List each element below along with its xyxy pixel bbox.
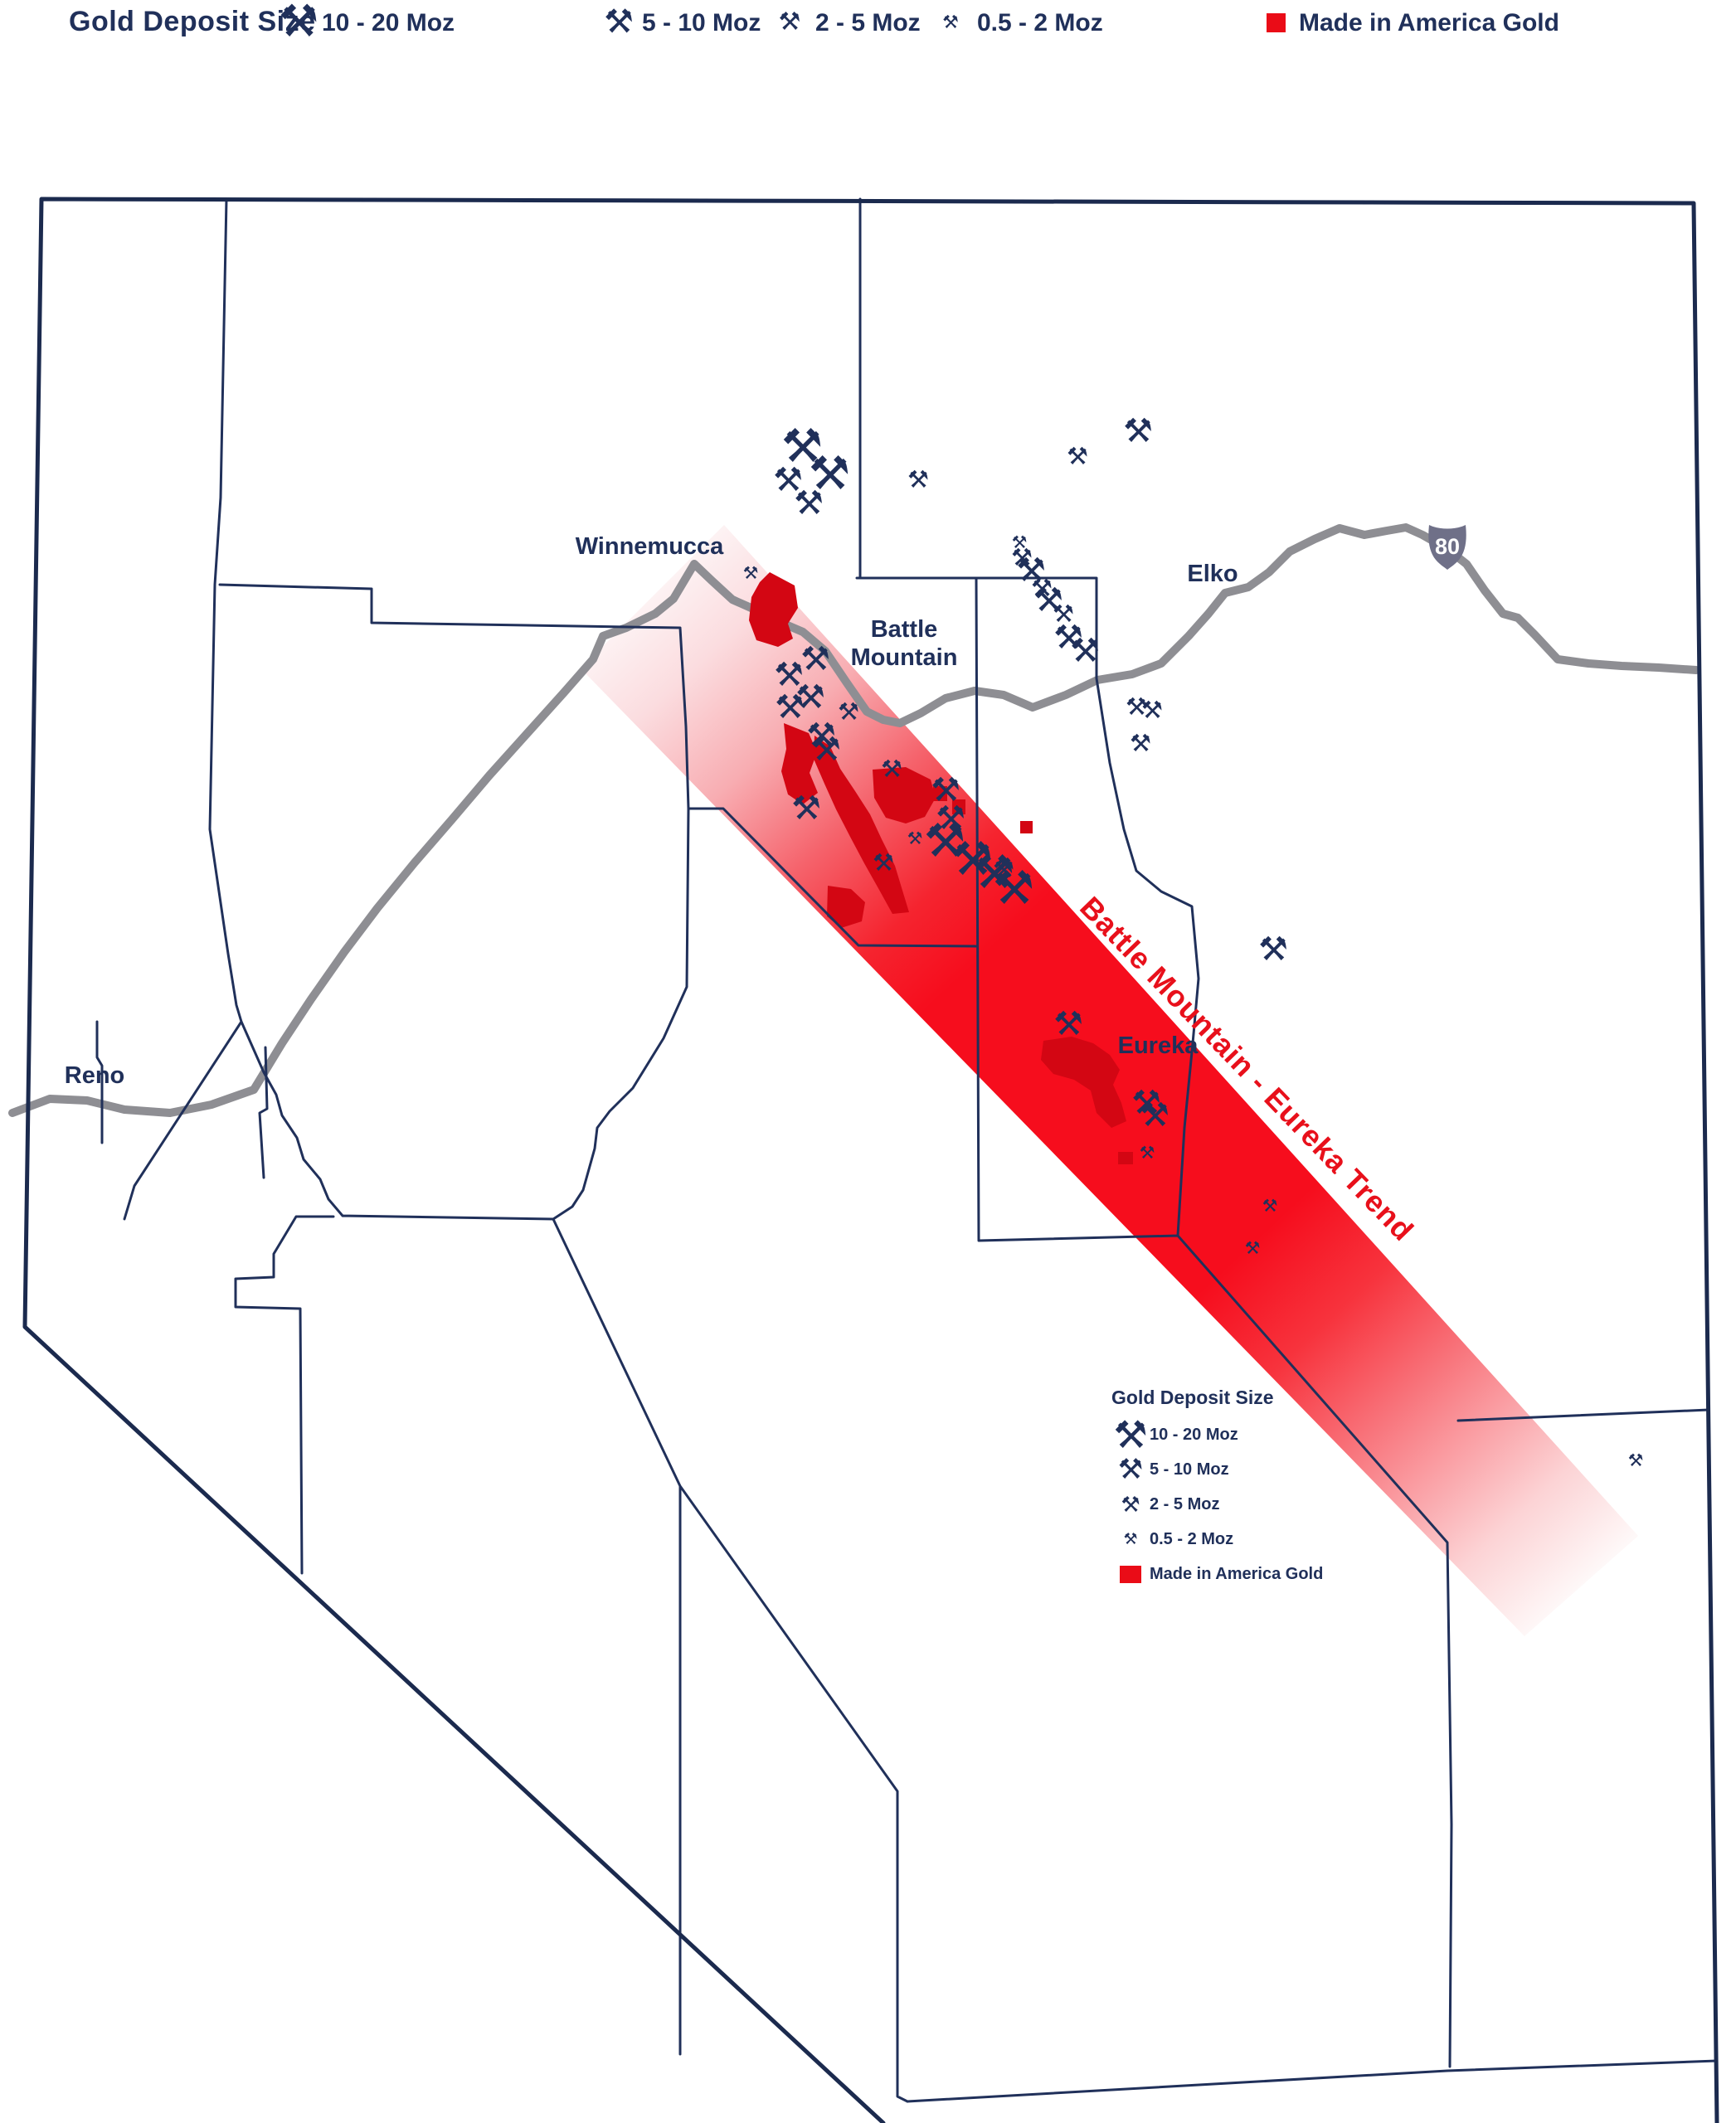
- city-label-winnemucca: Winnemucca: [576, 533, 724, 560]
- gold-deposit-icon-M: ⚒: [775, 688, 805, 726]
- legend-item-label: 5 - 10 Moz: [642, 9, 761, 37]
- gold-deposit-area: [1118, 1152, 1133, 1164]
- gold-deposit-icon-M: ⚒: [794, 484, 824, 522]
- inner-legend-item-label: 5 - 10 Moz: [1150, 1460, 1229, 1479]
- gold-deposit-icon-S: ⚒: [1067, 442, 1088, 470]
- city-label-battle-mountain: Battle: [871, 616, 938, 643]
- pickaxes-icon-small: ⚒: [1111, 1494, 1150, 1515]
- gold-deposit-icon-T: ⚒: [907, 828, 923, 848]
- nevada-state-outline: [25, 199, 1717, 2123]
- city-label-battle-mountain: Mountain: [851, 644, 958, 671]
- top-legend: Gold Deposit Size ⚒ 10 - 20 Moz ⚒ 5 - 10…: [0, 0, 1736, 58]
- made-in-america-swatch-cell: [1111, 1566, 1150, 1583]
- gold-deposit-icon-M: ⚒: [811, 731, 841, 769]
- gold-deposit-icon-M: ⚒: [1070, 632, 1100, 670]
- gold-deposit-icon-M: ⚒: [800, 640, 830, 678]
- made-in-america-swatch: [1120, 1566, 1141, 1583]
- pickaxes-icon-small: ⚒: [779, 10, 801, 35]
- page: { "colors": { "navy": "#20305a", "county…: [0, 0, 1736, 2123]
- inner-legend-row: ⚒ 0.5 - 2 Moz: [1111, 1522, 1385, 1557]
- pickaxes-icon-large: ⚒: [279, 0, 319, 44]
- inner-legend-item-label: 10 - 20 Moz: [1150, 1426, 1238, 1445]
- inner-legend-row: ⚒ 2 - 5 Moz: [1111, 1487, 1385, 1522]
- made-in-america-swatch: [1267, 13, 1286, 32]
- gold-deposit-icon-S: ⚒: [873, 848, 894, 877]
- inner-legend-row: ⚒ 5 - 10 Moz: [1111, 1452, 1385, 1487]
- gold-deposit-icon-M: ⚒: [1053, 1005, 1083, 1043]
- gold-deposit-icon-S: ⚒: [1141, 696, 1163, 724]
- pickaxes-icon-tiny: ⚒: [1111, 1532, 1150, 1547]
- gold-deposit-icon-T: ⚒: [1140, 1143, 1155, 1163]
- gold-deposit-icon-M: ⚒: [791, 789, 821, 828]
- inner-legend-row: ⚒ 10 - 20 Moz: [1111, 1417, 1385, 1452]
- made-in-america-label: Made in America Gold: [1299, 9, 1559, 37]
- gold-deposit-icon-M: ⚒: [1258, 930, 1288, 969]
- pickaxes-icon-large: ⚒: [1111, 1416, 1150, 1454]
- made-in-america-label: Made in America Gold: [1150, 1565, 1323, 1584]
- inner-legend: Gold Deposit Size ⚒ 10 - 20 Moz ⚒ 5 - 10…: [1111, 1387, 1385, 1591]
- gold-deposit-icon-S: ⚒: [1130, 729, 1151, 757]
- gold-deposit-icon-T: ⚒: [1628, 1450, 1644, 1470]
- pickaxes-icon-medium: ⚒: [604, 5, 634, 38]
- gold-deposit-icon-T: ⚒: [1262, 1196, 1278, 1216]
- inner-legend-item-label: 0.5 - 2 Moz: [1150, 1530, 1233, 1549]
- gold-deposit-icon-S: ⚒: [993, 855, 1014, 883]
- city-label-reno: Reno: [65, 1062, 125, 1089]
- legend-item-label: 2 - 5 Moz: [815, 9, 921, 37]
- pickaxes-icon-medium: ⚒: [1111, 1455, 1150, 1484]
- inner-legend-item-label: 2 - 5 Moz: [1150, 1495, 1219, 1514]
- gold-deposit-area: [1020, 821, 1033, 833]
- gold-deposit-icon-S: ⚒: [907, 465, 929, 493]
- borders-layer: [25, 199, 1717, 2123]
- legend-item-label: 10 - 20 Moz: [322, 9, 455, 37]
- gold-deposit-icon-S: ⚒: [881, 755, 902, 783]
- gold-deposit-icon-T: ⚒: [743, 563, 759, 583]
- gold-deposit-icon-T: ⚒: [1245, 1238, 1261, 1258]
- interstate-80-label: 80: [1435, 534, 1460, 559]
- legend-item-label: 0.5 - 2 Moz: [977, 9, 1103, 37]
- city-label-eureka: Eureka: [1118, 1032, 1199, 1059]
- nevada-map: ⚒⚒⚒⚒⚒⚒⚒⚒⚒⚒⚒⚒⚒⚒⚒⚒⚒⚒⚒⚒⚒⚒⚒⚒⚒⚒⚒⚒⚒⚒⚒⚒⚒⚒⚒⚒⚒⚒⚒⚒…: [0, 0, 1736, 2123]
- city-label-elko: Elko: [1187, 561, 1238, 587]
- gold-deposit-icon-M: ⚒: [1140, 1096, 1169, 1134]
- gold-deposit-icon-M: ⚒: [1123, 412, 1153, 450]
- inner-legend-title: Gold Deposit Size: [1111, 1387, 1385, 1409]
- pickaxes-icon-tiny: ⚒: [942, 13, 959, 32]
- gold-deposit-icon-S: ⚒: [838, 697, 859, 726]
- inner-legend-row: Made in America Gold: [1111, 1557, 1385, 1591]
